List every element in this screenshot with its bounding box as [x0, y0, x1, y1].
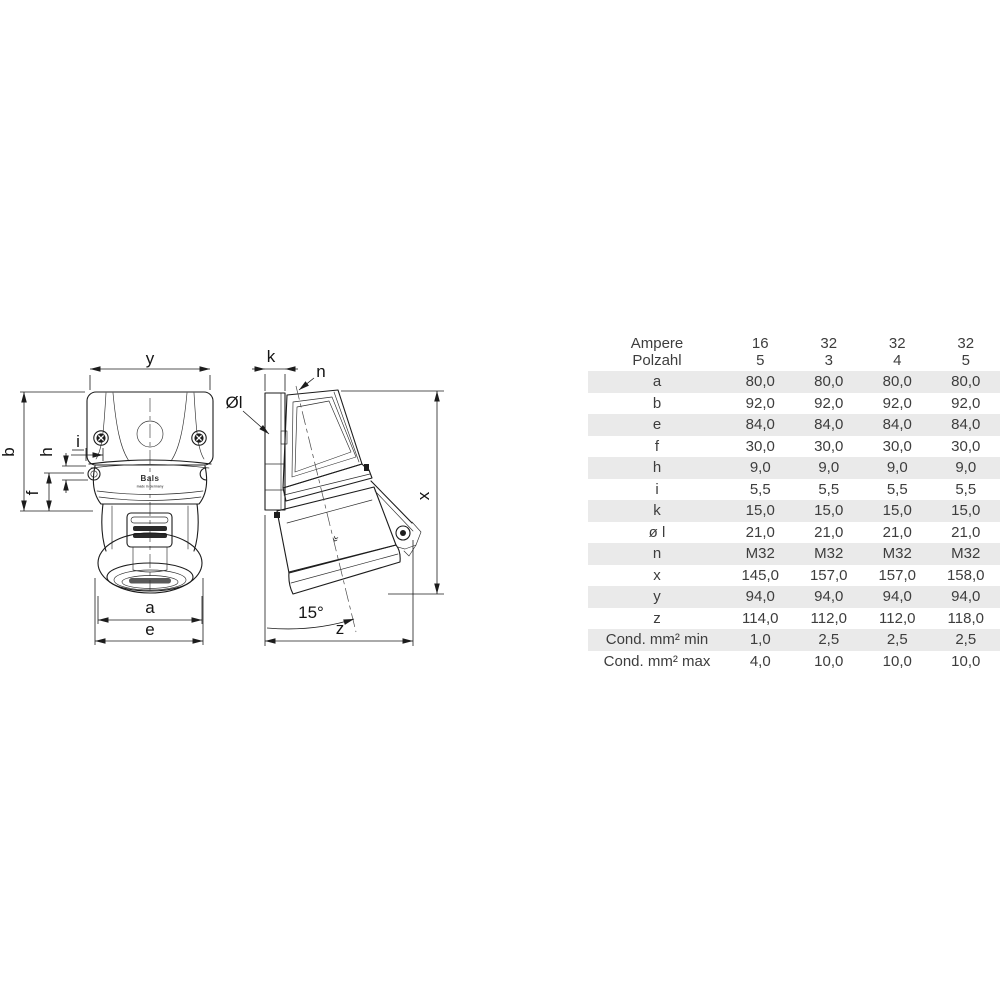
cell: 10,0 [932, 653, 1000, 670]
cell: 112,0 [863, 610, 932, 627]
header-polzahl-label: Polzahl [588, 352, 726, 369]
cell: 80,0 [932, 373, 1000, 390]
tilted-socket-cup: « [274, 487, 400, 594]
table-row-x: x 145,0 157,0 157,0 158,0 [588, 565, 1000, 587]
table-row-b: b 92,0 92,0 92,0 92,0 [588, 393, 1000, 415]
dim-label-a: a [145, 598, 155, 617]
cell: 92,0 [795, 395, 864, 412]
table-row-cond-min: Cond. mm² min 1,0 2,5 2,5 2,5 [588, 629, 1000, 651]
cell: 9,0 [863, 459, 932, 476]
header-label-cell: Ampere Polzahl [588, 335, 726, 369]
col-ampere: 32 [795, 335, 864, 352]
cell: 114,0 [726, 610, 795, 627]
dim-label-e: e [145, 620, 154, 639]
dim-label-h: h [37, 447, 56, 456]
logo-subtext: made in Germany [137, 485, 164, 489]
row-label: n [588, 545, 726, 562]
row-label: f [588, 438, 726, 455]
cell: 15,0 [932, 502, 1000, 519]
header-col-2: 32 3 [795, 335, 864, 369]
screw-right-icon [192, 431, 206, 445]
cell: 94,0 [863, 588, 932, 605]
cell: 84,0 [863, 416, 932, 433]
col-ampere: 32 [863, 335, 932, 352]
cell: 21,0 [795, 524, 864, 541]
face-mark: « [328, 534, 341, 544]
row-label: b [588, 395, 726, 412]
cell: 30,0 [795, 438, 864, 455]
cell: M32 [726, 545, 795, 562]
cell: 21,0 [726, 524, 795, 541]
dimension-table: Ampere Polzahl 16 5 32 3 32 4 32 5 a 80,… [588, 335, 1000, 672]
header-col-1: 16 5 [726, 335, 795, 369]
cell: 4,0 [726, 653, 795, 670]
front-view: Bals made in Germany [0, 349, 213, 645]
table-row-e: e 84,0 84,0 84,0 84,0 [588, 414, 1000, 436]
cell: 5,5 [863, 481, 932, 498]
cell: 92,0 [726, 395, 795, 412]
table-row-a: a 80,0 80,0 80,0 80,0 [588, 371, 1000, 393]
row-label: a [588, 373, 726, 390]
header-ampere-label: Ampere [588, 335, 726, 352]
cell: 21,0 [932, 524, 1000, 541]
row-label: Cond. mm² min [588, 631, 726, 648]
table-row-y: y 94,0 94,0 94,0 94,0 [588, 586, 1000, 608]
row-label: x [588, 567, 726, 584]
cell: 157,0 [795, 567, 864, 584]
row-label: e [588, 416, 726, 433]
cell: 15,0 [795, 502, 864, 519]
cell: 15,0 [726, 502, 795, 519]
cell: 10,0 [795, 653, 864, 670]
side-view: « k n Øl [226, 347, 445, 646]
cell: 84,0 [726, 416, 795, 433]
cell: 94,0 [726, 588, 795, 605]
dim-label-x: x [414, 491, 433, 500]
row-label: ø l [588, 524, 726, 541]
cell: 157,0 [863, 567, 932, 584]
row-label: z [588, 610, 726, 627]
mounting-hole [281, 431, 287, 444]
col-polzahl: 5 [726, 352, 795, 369]
cell: 92,0 [863, 395, 932, 412]
col-ampere: 16 [726, 335, 795, 352]
dim-h: h [37, 447, 88, 493]
cell: 80,0 [863, 373, 932, 390]
cell: 80,0 [795, 373, 864, 390]
table-header: Ampere Polzahl 16 5 32 3 32 4 32 5 [588, 335, 1000, 369]
cell: M32 [932, 545, 1000, 562]
technical-drawing: Bals made in Germany [0, 330, 500, 660]
dim-y: y [90, 349, 210, 390]
dim-label-i: i [76, 432, 80, 451]
col-polzahl: 3 [795, 352, 864, 369]
drawing-svg: Bals made in Germany [0, 330, 500, 660]
cell: 9,0 [932, 459, 1000, 476]
cell: 2,5 [932, 631, 1000, 648]
cell: 9,0 [726, 459, 795, 476]
cell: 112,0 [795, 610, 864, 627]
screw-left-icon [94, 431, 108, 445]
cell: 84,0 [795, 416, 864, 433]
dim-label-diameter: Øl [226, 393, 243, 412]
cell: 5,5 [726, 481, 795, 498]
tilted-housing [283, 390, 372, 501]
row-label: h [588, 459, 726, 476]
col-ampere: 32 [932, 335, 1000, 352]
table-row-ol: ø l 21,0 21,0 21,0 21,0 [588, 522, 1000, 544]
cell: 21,0 [863, 524, 932, 541]
col-polzahl: 4 [863, 352, 932, 369]
cell: 9,0 [795, 459, 864, 476]
dim-f: f [23, 473, 84, 511]
dim-n: n [299, 362, 326, 390]
cell: 2,5 [863, 631, 932, 648]
dim-label-b: b [0, 447, 18, 456]
dim-label-f: f [23, 490, 42, 495]
cell: 158,0 [932, 567, 1000, 584]
cell: 5,5 [795, 481, 864, 498]
table-row-i: i 5,5 5,5 5,5 5,5 [588, 479, 1000, 501]
cell: M32 [795, 545, 864, 562]
row-label: k [588, 502, 726, 519]
cell: 94,0 [932, 588, 1000, 605]
table-row-cond-max: Cond. mm² max 4,0 10,0 10,0 10,0 [588, 651, 1000, 673]
cell: 84,0 [932, 416, 1000, 433]
hinge-pin [364, 464, 369, 471]
table-row-f: f 30,0 30,0 30,0 30,0 [588, 436, 1000, 458]
cell: 2,5 [795, 631, 864, 648]
dim-diameter-l: Øl [226, 393, 270, 434]
logo-text: Bals [141, 474, 160, 483]
row-label: i [588, 481, 726, 498]
table-row-n: n M32 M32 M32 M32 [588, 543, 1000, 565]
cell: 5,5 [932, 481, 1000, 498]
dim-k: k [252, 347, 298, 391]
header-col-4: 32 5 [932, 335, 1000, 369]
row-label: Cond. mm² max [588, 653, 726, 670]
cell: 145,0 [726, 567, 795, 584]
dim-label-y: y [146, 349, 155, 368]
cell: 1,0 [726, 631, 795, 648]
cell: 80,0 [726, 373, 795, 390]
cell: 118,0 [932, 610, 1000, 627]
cell: 92,0 [932, 395, 1000, 412]
row-label: y [588, 588, 726, 605]
dim-label-angle: 15° [298, 603, 324, 622]
dim-label-k: k [267, 347, 276, 366]
cell: 30,0 [726, 438, 795, 455]
dim-x: x [341, 391, 444, 594]
cell: 30,0 [863, 438, 932, 455]
header-col-3: 32 4 [863, 335, 932, 369]
table-row-h: h 9,0 9,0 9,0 9,0 [588, 457, 1000, 479]
col-polzahl: 5 [932, 352, 1000, 369]
cap-marking [129, 578, 171, 584]
tilt-centerline [296, 386, 356, 632]
dim-label-n: n [316, 362, 325, 381]
page: { "colors": { "background": "#ffffff", "… [0, 0, 1000, 1000]
cell: 94,0 [795, 588, 864, 605]
cell: M32 [863, 545, 932, 562]
table-row-k: k 15,0 15,0 15,0 15,0 [588, 500, 1000, 522]
table-row-z: z 114,0 112,0 112,0 118,0 [588, 608, 1000, 630]
cell: 10,0 [863, 653, 932, 670]
cell: 30,0 [932, 438, 1000, 455]
cell: 15,0 [863, 502, 932, 519]
